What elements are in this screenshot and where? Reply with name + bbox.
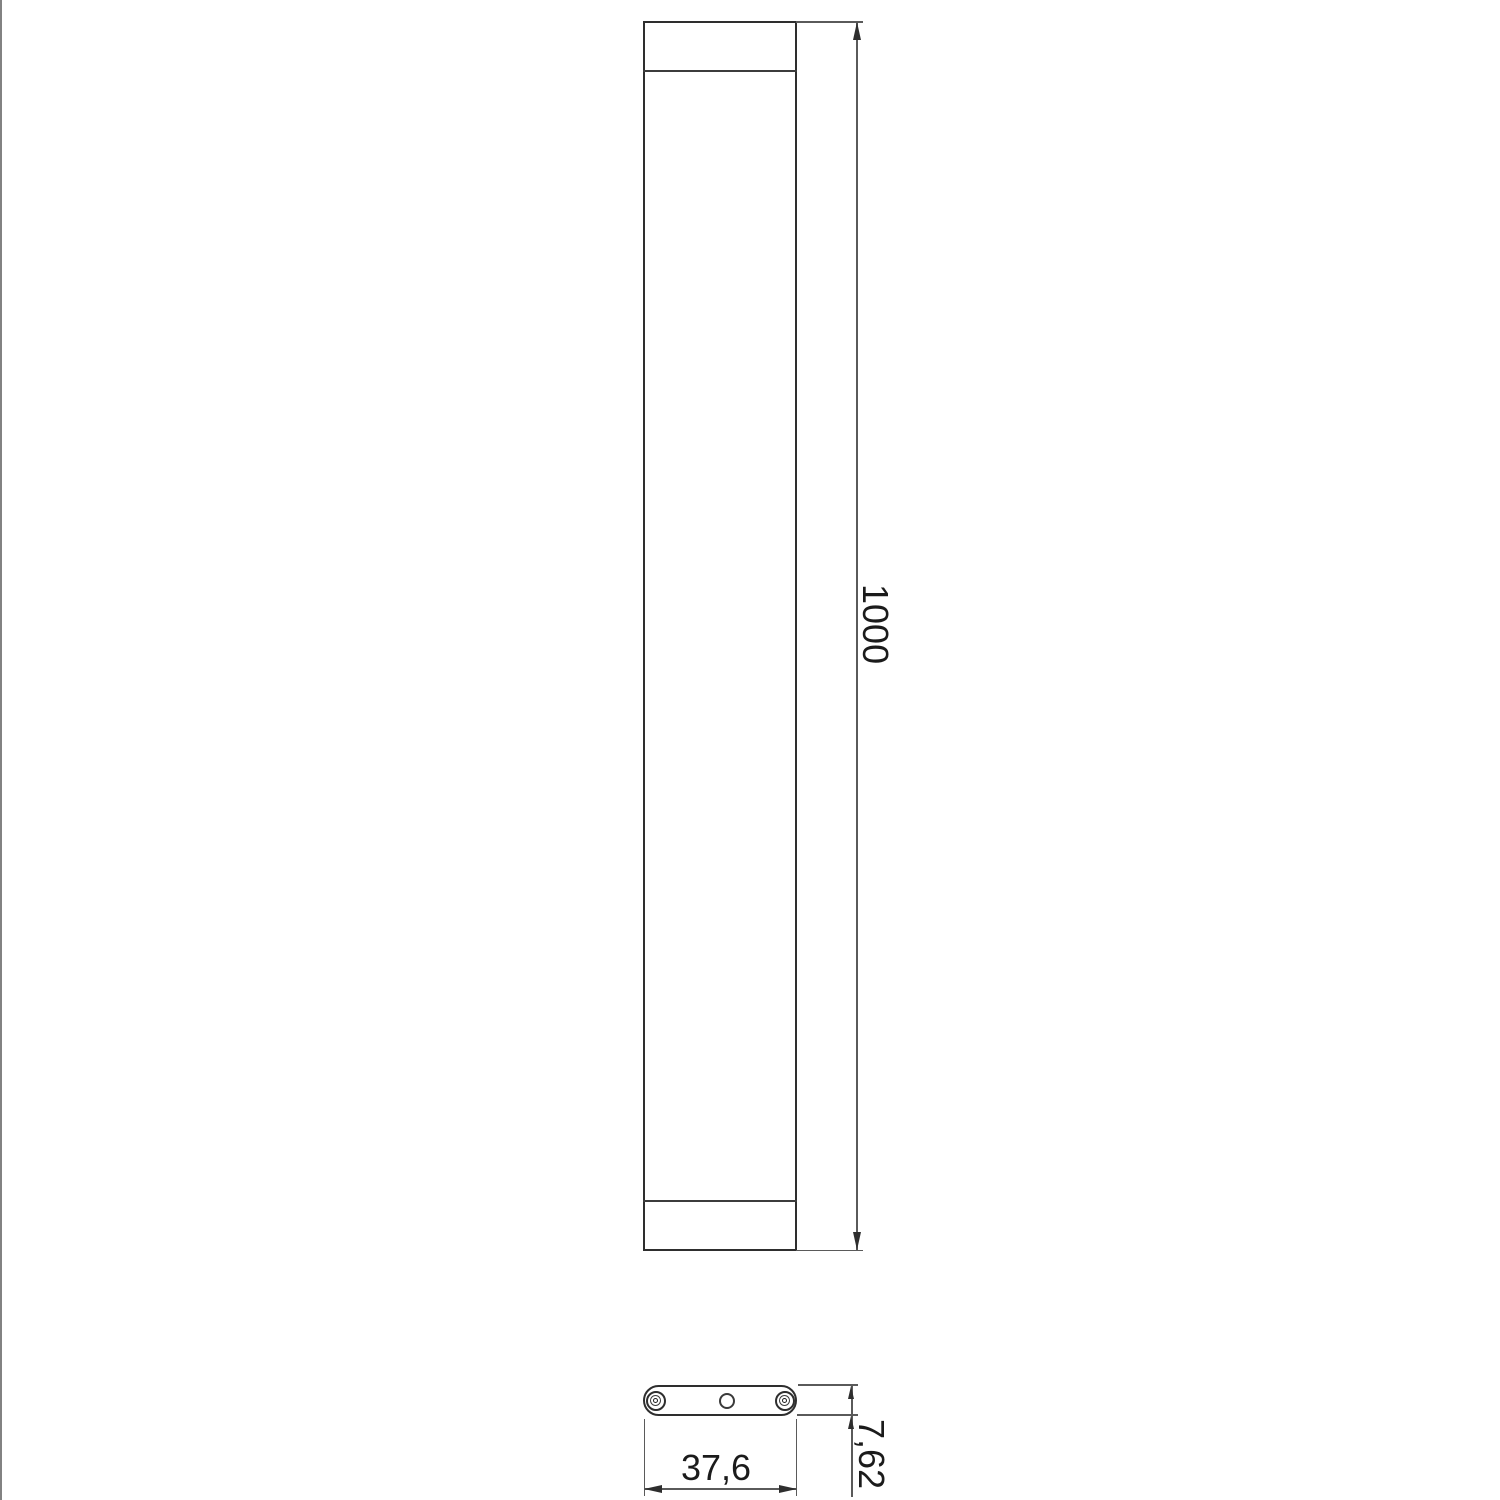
dimension-label-length: 1000: [857, 584, 893, 664]
side-rail-line-left: [0, 0, 2, 1228]
arrowhead-up-icon: [853, 22, 861, 40]
dimension-label-height: 7,62: [853, 1419, 889, 1489]
dimension-label-width: 37,6: [646, 1450, 786, 1486]
profile-outline: [643, 21, 797, 1251]
arrowhead-height-top-icon: [848, 1386, 854, 1399]
dimension-line-width: [644, 1488, 798, 1490]
side-rail-line-right: [0, 1228, 2, 1500]
technical-drawing-canvas: 1000 37,6 7,62: [0, 0, 1500, 1500]
arrowhead-right-icon: [779, 1485, 797, 1493]
end-cap-bottom-line: [643, 1200, 797, 1202]
screw-left-core-icon: [653, 1398, 658, 1403]
center-hole-icon: [719, 1393, 735, 1409]
front-view: [0, 0, 1500, 1500]
end-cap-top-line: [643, 70, 797, 72]
arrowhead-down-icon: [853, 1232, 861, 1250]
screw-right-core-icon: [782, 1398, 787, 1403]
arrowhead-left-icon: [644, 1485, 662, 1493]
